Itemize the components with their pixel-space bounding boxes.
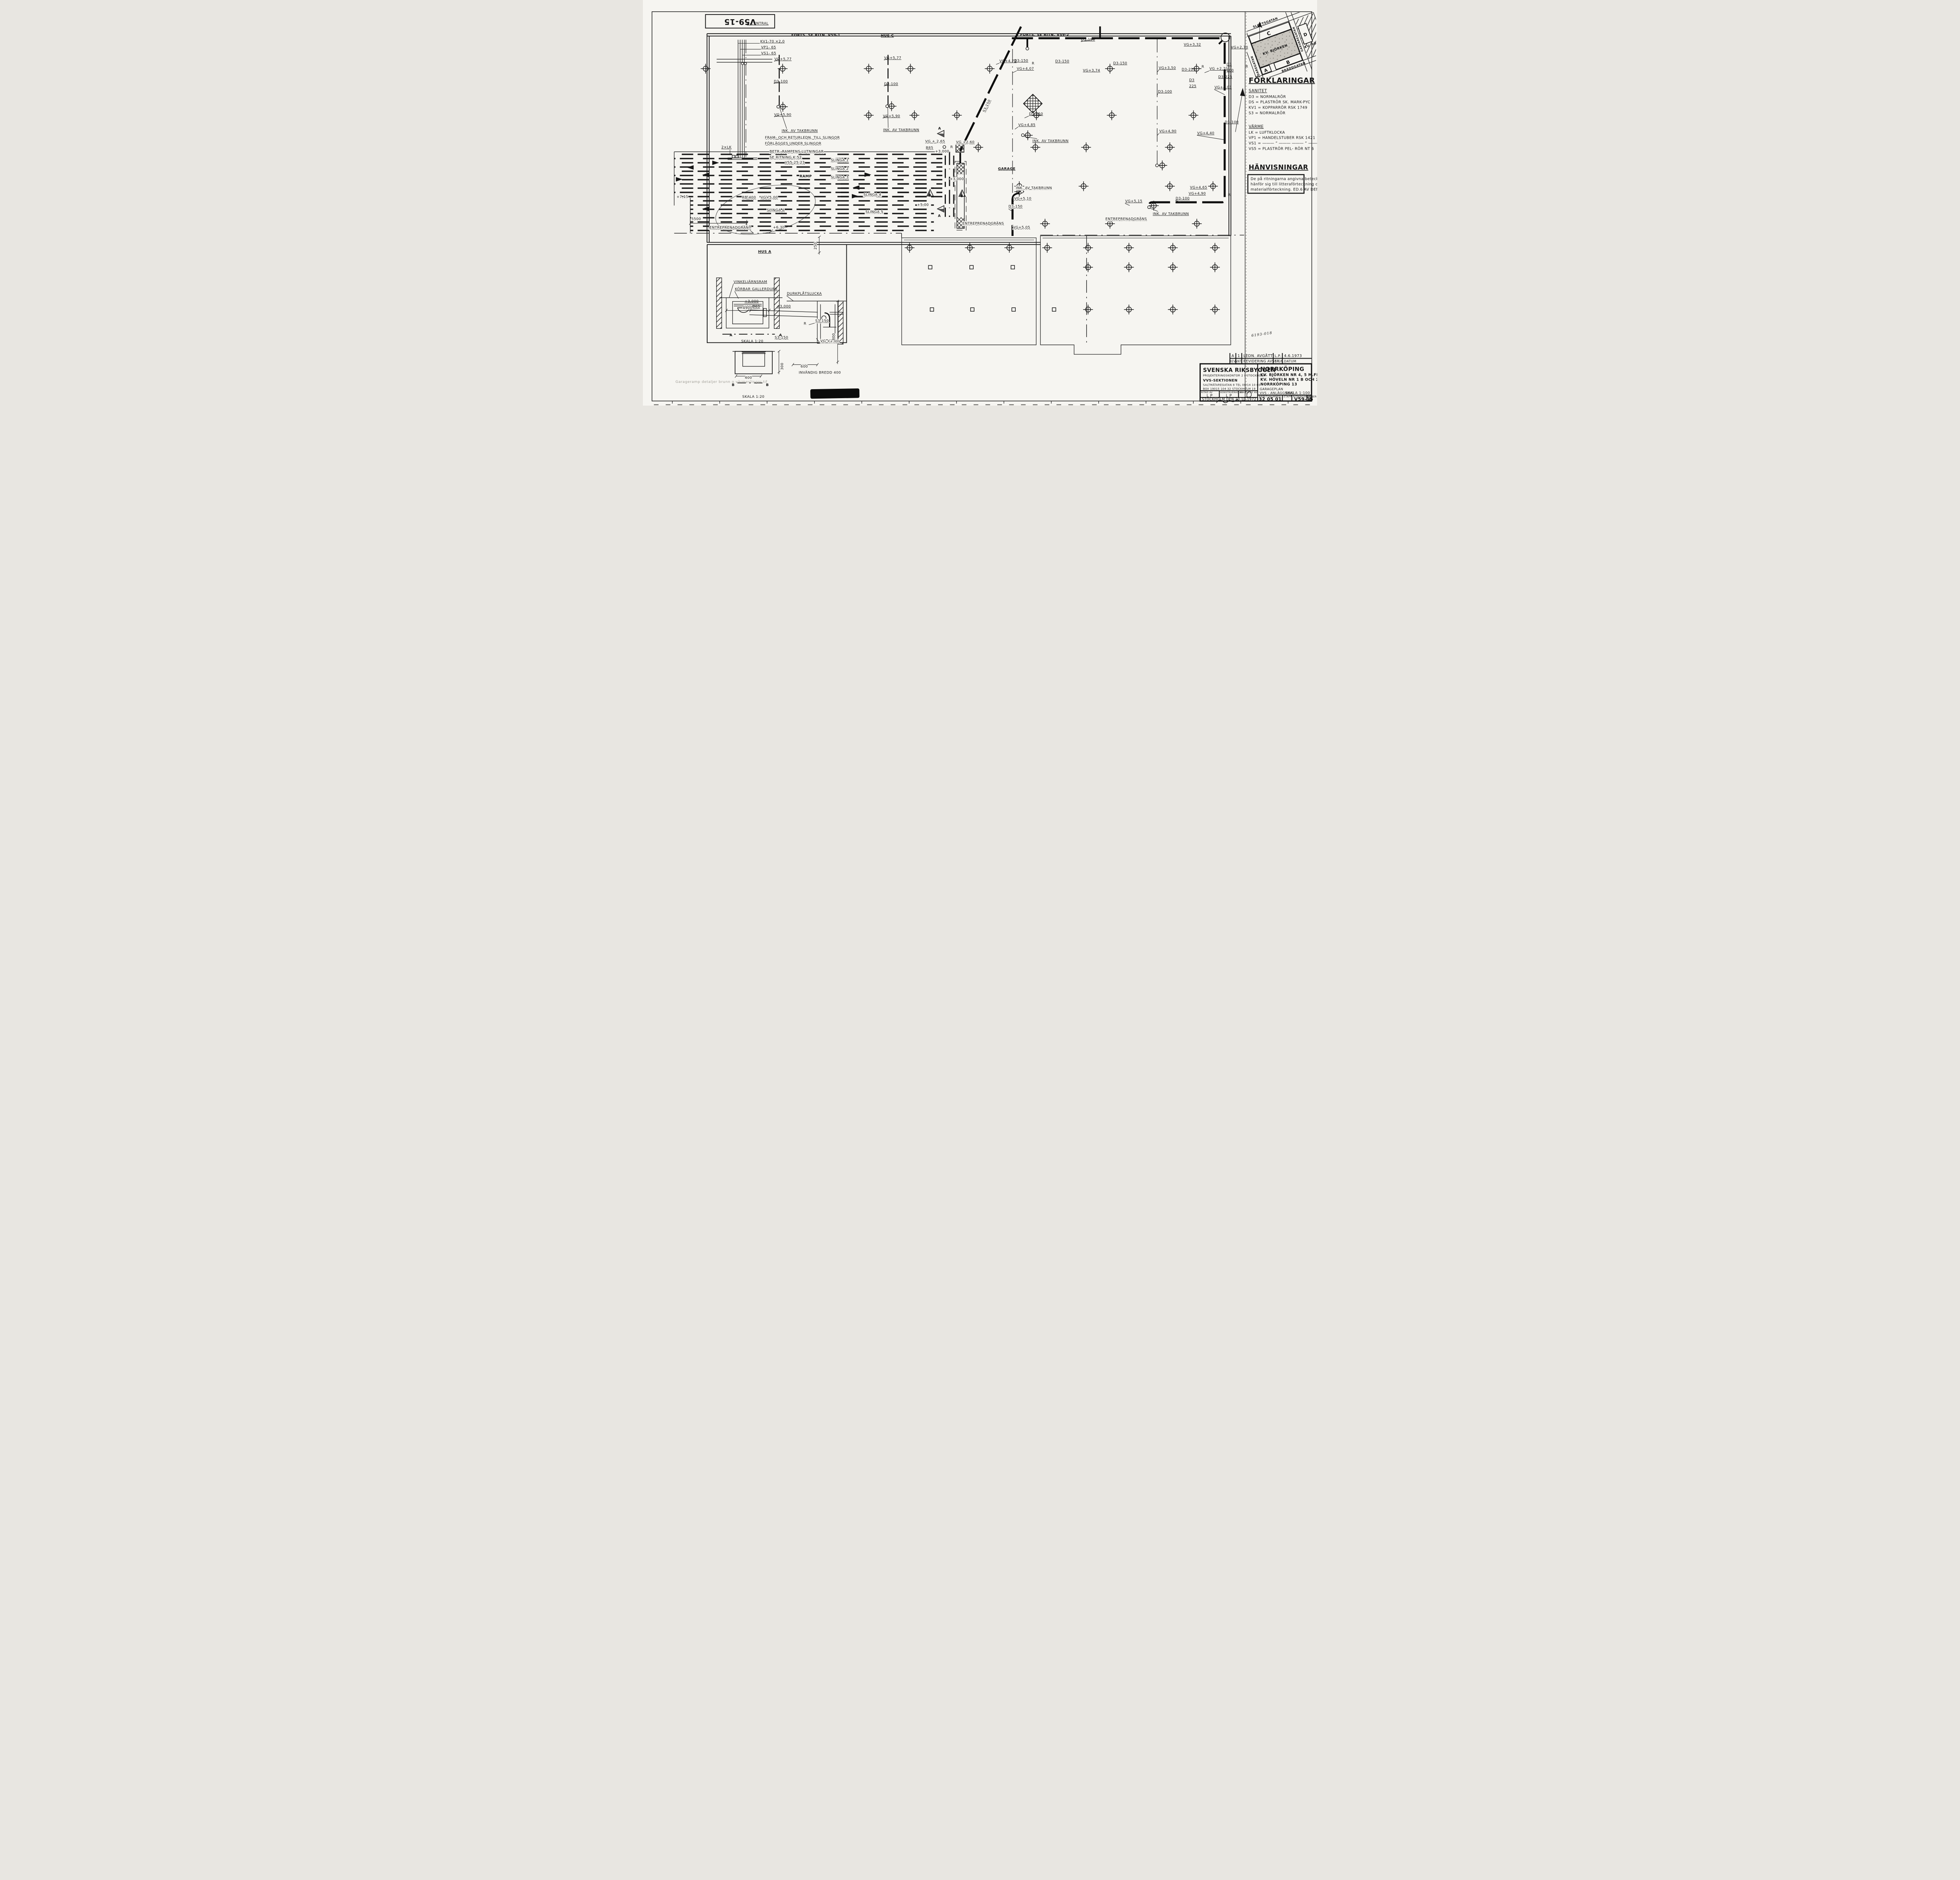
annotation-label: 4900 — [743, 306, 753, 310]
roof-drain-symbol — [1042, 243, 1052, 253]
annotation-label: VG +2,60 — [820, 339, 839, 343]
annotation-label: VG+5,90 — [774, 113, 791, 117]
annotation-label: INVÄNDIG BREDD 400 — [799, 370, 841, 375]
annotation-label: 6193-018 — [1251, 331, 1273, 338]
annotation-label: 400 — [745, 376, 752, 380]
annotation-label: VG+4,90 — [1189, 192, 1206, 196]
storage-block-right — [1040, 236, 1231, 355]
annotation-label: D3-100 — [1225, 121, 1239, 125]
annotation-label: SLINGA 4 — [864, 193, 882, 197]
drain-inlet-symbol — [777, 105, 780, 108]
annotation-label: FORTS. SE RITN. V59-1 — [791, 33, 840, 37]
annotation-label: U-CENTRAL — [747, 22, 768, 26]
storage-block-left — [902, 238, 1036, 345]
annotation-label: R — [804, 322, 806, 326]
arbetsnummer-value: 32 05 01 — [1259, 397, 1281, 402]
annotation-label: D3 — [1189, 78, 1195, 82]
annotation-label: 250 — [814, 242, 818, 250]
roof-drain-symbol — [1168, 243, 1178, 253]
annotation-label: VG+5,90 — [883, 114, 900, 118]
legend-item: DS = PLASTRÖR SK. MARK-PYC — [1249, 100, 1310, 105]
revision-table: A 1 LEDN. AVGÅTT L.P. 4.6.1973 REV. ANT.… — [1229, 353, 1312, 364]
annotation-label: A — [730, 334, 732, 337]
annotation-label: +7,15 — [677, 195, 688, 199]
roof-drain-diamond — [1024, 94, 1042, 113]
annotation-label: RAMP — [800, 175, 812, 179]
roof-drain-symbol — [1083, 305, 1093, 314]
rev-header-datum: DATUM — [1284, 359, 1296, 363]
drain-inlet-symbol — [1020, 190, 1023, 193]
roof-drain-symbol — [1165, 181, 1175, 191]
detail-section-BB — [733, 352, 775, 374]
annotation-label: SKALA 1:20 — [742, 395, 765, 399]
roof-drain-symbol — [909, 111, 919, 120]
company-section: VVS-SEKTIONEN — [1203, 379, 1238, 383]
annotation-label: VG +2,70 — [1209, 67, 1228, 71]
column-symbol — [928, 265, 932, 269]
legend-item: VS5 = PLASTRÖR PEL- RÖR NT 6 — [1249, 147, 1314, 151]
rev-entry-sign: L.P. — [1274, 354, 1281, 358]
drawing-canvas: V59-15 — [643, 0, 1317, 406]
roof-drain-symbol — [1210, 243, 1220, 253]
annotation-label: VG+3,74 — [1083, 69, 1100, 73]
annotation-label: VG+4,85 — [1018, 123, 1036, 127]
annotation-label: VG+5,15 — [1125, 199, 1142, 203]
legend-heading: FÖRKLARINGAR — [1249, 75, 1315, 85]
legend-item: De på ritningarna angivna beteckningarna — [1250, 177, 1317, 181]
annotation-label: D3-150 — [1009, 205, 1023, 209]
garage-plan — [674, 26, 1245, 383]
roof-drain-symbol — [1040, 219, 1050, 228]
annotation-label: R — [1228, 193, 1231, 197]
annotation-label: VG+4,75 — [1000, 60, 1017, 63]
scale-label: SKALA 1:100 — [1285, 392, 1310, 395]
project-city: NORRKÖPING — [1260, 365, 1304, 372]
annotation-label: SLINGA 3 — [831, 176, 849, 179]
annotation-label: VG+4,40 — [1197, 132, 1214, 136]
annotation-label: 800 — [832, 333, 836, 341]
section-arrow-A-top — [937, 131, 944, 137]
ink-blob — [810, 388, 860, 399]
column-symbol — [970, 265, 973, 269]
annotation-label: INK. AV TAKBRUNN — [883, 128, 919, 132]
annotation-label: FORTS. SE RITN. V59-2 — [1020, 33, 1069, 37]
coil-field-slinga45 — [841, 183, 934, 234]
annotation-label: 2×LK — [721, 146, 732, 150]
annotation-label: INK. AV TAKBRUNN — [1033, 140, 1069, 143]
roof-drain-symbol — [1031, 142, 1040, 152]
company-office: PROJEKTERINGSKONTOR 2 I STOCKHOLM — [1203, 374, 1266, 377]
roof-drain-symbol — [1157, 161, 1167, 170]
legend-item: materialförteckning. ED.6 AV DEN 1.10.19… — [1250, 187, 1317, 192]
annotation-label: VG+5,05 — [1013, 226, 1030, 230]
annotation-label: D3-150 — [1081, 38, 1095, 42]
up-arrow-icon — [1236, 88, 1245, 132]
annotation-label: VP1- 65 — [761, 45, 776, 49]
annotation-label: 600 — [800, 365, 808, 369]
rev-entry-ant: 1 — [1238, 354, 1240, 358]
roof-drain-symbol — [1124, 243, 1134, 253]
annotation-label: +3,000 — [950, 178, 964, 181]
annotation-label: VINKELJÄRNSRAM — [733, 280, 767, 284]
legend-item: VS1 = ――― ” ――― ――― ” ――― — [1249, 141, 1317, 146]
annotation-label: +3,000 — [744, 299, 759, 303]
content-line1: GARAGEPLAN — [1259, 387, 1283, 391]
annotation-label: VG+5,00 — [760, 196, 778, 200]
annotation-label: B — [928, 194, 931, 198]
annotation-label: INK. AV TAKBRUNN — [782, 129, 818, 133]
legend-item: S3 = NORMALRÖR — [1249, 111, 1285, 115]
roof-drain-symbol — [1210, 262, 1220, 272]
legend-item: LK = LUFTKLOCKA — [1249, 131, 1285, 135]
rev-entry-avser: LEDN. AVGÅTT — [1243, 354, 1273, 358]
drain-inlet-symbol — [943, 145, 946, 148]
column-symbol — [1052, 308, 1056, 311]
column-symbol — [930, 308, 934, 311]
roof-drain-symbol — [864, 64, 874, 74]
annotation-label: SE RITNING K:52 — [769, 156, 802, 160]
annotation-label: SLINGA 1 — [831, 159, 849, 163]
rev-header-ant: ANT. — [1235, 360, 1243, 363]
roof-drain-symbol — [973, 142, 983, 152]
etapp-label: ETAPP — [1284, 395, 1292, 398]
ritad-value: L P — [1207, 393, 1212, 398]
drain-inlet-symbol — [1022, 134, 1024, 136]
annotation-label: VG + 2,65 — [925, 140, 945, 144]
annotation-label: VG+5,77 — [884, 56, 901, 60]
annotation-label: A — [749, 225, 751, 229]
title-block: SVENSKA RIKSBYGGEN PROJEKTERINGSKONTOR 2… — [1200, 364, 1317, 402]
roof-drain-symbol — [1165, 142, 1175, 152]
roof-drain-symbol — [864, 111, 874, 120]
annotation-label: VS1- 65 — [761, 52, 776, 56]
annotation-label: VG+4,03 — [1214, 85, 1232, 89]
annotation-label: VG +2,60 — [956, 141, 975, 145]
drain-inlet-symbol — [1026, 47, 1029, 50]
company-box: BOX 19015 104 32 STOCKHOLM 19 — [1203, 387, 1256, 390]
roof-drain-symbol — [1189, 111, 1198, 120]
drain-inlet-symbol — [886, 105, 889, 107]
drain-inlet-symbol — [1156, 164, 1158, 167]
annotation-label: KÖRBAR GALLERDURK — [735, 287, 778, 292]
project-obj2: KV. HÖVELN NR 1 B OCH 2 A — [1260, 377, 1317, 382]
annotation-label: INK. AV TAKBRUNN — [1153, 212, 1189, 216]
rev-entry-datum: 4.6.1973 — [1284, 354, 1302, 358]
annotation-label: +5,00 — [917, 203, 929, 207]
annotation-label: INK. AV TAKBRUNN — [1016, 186, 1052, 190]
annotation-label: VG+5,10 — [1014, 197, 1031, 201]
annotation-label: VS5-25:23 — [785, 161, 805, 165]
annotation-label: ENTREPRENADGRÄNS — [710, 226, 751, 230]
annotation-label: 100 — [1227, 69, 1234, 73]
column-symbol — [1011, 265, 1014, 269]
annotation-label: D3-150 — [1029, 112, 1043, 116]
annotation-label: 300 — [780, 363, 784, 370]
ritad-label: RITAD AV — [1201, 392, 1212, 394]
legend-subheading-varme: VÄRME — [1249, 124, 1263, 129]
roof-drain-symbol — [1210, 305, 1220, 314]
annotation-label: SLINGA 5 — [866, 210, 884, 214]
annotation-label: B85 — [926, 146, 933, 150]
drain-inlet-symbol — [1148, 206, 1151, 208]
roof-drain-symbol — [985, 64, 995, 74]
annotation-label: VG+4,90 — [1159, 130, 1176, 134]
annotation-label: ENTREPRENADGRÄNS — [962, 221, 1004, 226]
column-symbol — [971, 308, 974, 311]
project-obj3: NORRKÖPING 13 — [1260, 383, 1297, 387]
annotation-label: BETR. RAMPENS LUTNINGAR — [769, 150, 824, 154]
legend-item: VP1 = HANDELSTUBER RSK 1421 — [1249, 136, 1315, 140]
legend-subheading-sanitet: SANITET — [1249, 89, 1267, 93]
annotation-label: HUS A — [758, 250, 771, 254]
annotation-label: +3,000 — [777, 305, 791, 308]
annotation-label: KV1-70 ×2,0 — [760, 40, 785, 44]
legend: FÖRKLARINGAR SANITET D3 = NORMALRÖRDS = … — [1249, 75, 1317, 151]
annotation-label: R — [1201, 65, 1204, 69]
roof-drain-symbol — [1107, 111, 1117, 120]
annotation-label: D3-100 — [1176, 197, 1190, 201]
rev-header-avser: REVIDERING AVSER — [1243, 360, 1279, 364]
hanvisningar-heading: HÄNVISNINGAR — [1249, 163, 1308, 171]
annotation-label: D3-225 — [1182, 68, 1196, 72]
place-date: STOCKHOLM DEN 20.10.1972 — [1202, 397, 1256, 401]
hanvisningar: HÄNVISNINGAR De på ritningarna angivna b… — [1248, 163, 1317, 193]
annotation-label: DURKPLÅTSLUCKA — [787, 291, 822, 296]
rev-header-sign: SIGN. — [1274, 359, 1284, 363]
annotation-label: ENTREPRENADGRÄNS — [1105, 217, 1147, 221]
annotation-label: SLINGA 2 — [831, 167, 849, 171]
legend-item: KV1 = KOPPARRÖR RSK 1749 — [1249, 105, 1307, 110]
konstruerad-value: L P — [1226, 393, 1232, 398]
annotation-label: SLINGA 6 — [767, 208, 785, 212]
annotation-label: SKALA 1:20 — [741, 339, 764, 343]
rev-value: A — [1308, 397, 1312, 402]
annotation-label: D3-150 — [1055, 60, 1069, 63]
annotation-label: 5500 — [691, 217, 701, 221]
annotation-label: FRAM- OCH RETURLEDN. TILL SLINGOR — [765, 136, 840, 140]
roof-drain-symbol — [1083, 243, 1093, 253]
annotation-label: D3-100 — [884, 82, 898, 86]
annotation-label: D3-150 — [1113, 62, 1127, 65]
annotation-label: D3-150 — [1014, 59, 1028, 63]
column-symbol — [1012, 308, 1015, 311]
roof-drain-symbol — [1124, 262, 1134, 272]
roof-drain-symbol — [1124, 305, 1134, 314]
roof-drain-symbol — [1083, 262, 1093, 272]
annotation-label: FÖRLÄGGES UNDER SLINGOR — [765, 141, 821, 146]
project-obj1: KV. BJÖRKEN NR 4, 5 M.FL. — [1260, 373, 1317, 377]
annotation-label: VG+3,50 — [1159, 66, 1176, 70]
legend-item: D3 = NORMALRÖR — [1249, 95, 1286, 99]
annotation-label: VG+4,65 — [1190, 186, 1207, 190]
annotation-label: VG+3,32 — [1184, 43, 1201, 47]
annotation-label: GARAGE — [998, 167, 1016, 171]
drawing-sheet: V59-15 — [643, 0, 1317, 406]
annotation-label: VG+5,77 — [775, 58, 792, 62]
roof-drain-symbol — [1081, 142, 1091, 152]
annotation-label: A — [779, 334, 782, 337]
annotation-label: 225 — [1189, 84, 1197, 88]
annotation-label: B — [960, 194, 963, 198]
roof-drain-symbol — [1192, 219, 1202, 228]
annotation-label: A — [938, 127, 941, 131]
annotation-label: VG+4,07 — [1017, 67, 1034, 71]
annotation-label: S3-150 — [815, 319, 829, 323]
annotation-label: HUS C — [881, 34, 894, 38]
annotation-label: D3-100 — [1158, 90, 1172, 94]
annotation-label: Garageramp detaljer brunn o värmeslingor… — [675, 380, 768, 384]
roof-drain-symbol — [1208, 181, 1218, 191]
annotation-label: R — [950, 145, 953, 149]
annotation-label: RB-400 — [742, 196, 756, 200]
corner-reference: V59-15 — [706, 15, 775, 28]
annotation-label: D3-225 — [1218, 75, 1232, 79]
rev-entry-rev: A — [1232, 354, 1234, 358]
annotation-label: D3 — [1227, 63, 1232, 67]
roof-drain-symbol — [906, 64, 915, 74]
annotation-label: Ø63 — [752, 305, 760, 309]
annotation-label: +6,30 — [773, 226, 785, 230]
annotation-label: A — [938, 214, 941, 218]
annotation-label: R — [1245, 65, 1248, 69]
coil-field-turns — [943, 152, 955, 217]
roof-drain-symbol — [1168, 305, 1178, 314]
roof-drain-symbol — [1168, 262, 1178, 272]
roof-drain-symbol — [1079, 181, 1089, 191]
annotation-label: VG+2,70 — [1231, 45, 1248, 49]
company-address: SALTMÄTAREGATAN 8 TEL 08/14 10 60 — [1203, 383, 1260, 386]
annotation-label: D3-100 — [774, 80, 788, 83]
legend-item: hänför sig till litteraförteckning och/e… — [1250, 182, 1317, 187]
annotation-label: R — [1032, 62, 1034, 65]
annotation-label: +3,000 — [935, 150, 949, 154]
roof-drain-symbol — [952, 111, 962, 120]
